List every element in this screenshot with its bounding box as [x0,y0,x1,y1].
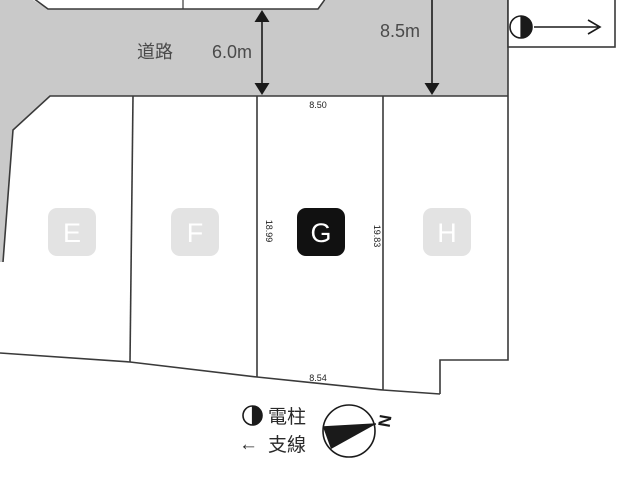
legend-pole-label: 電柱 [268,406,306,428]
plot-f-chip: F [171,208,219,256]
road-width-secondary-label: 8.5m [380,21,420,41]
plot-e-f-divider-line [130,96,133,362]
road-width-main-label: 6.0m [212,42,252,62]
north-neighbor-plot [33,0,326,9]
legend-guy-arrow-icon: ← [239,434,258,455]
road-label: 道路 [137,42,173,62]
plot-g-chip: G [297,208,345,256]
legend-pole-icon [243,406,262,425]
utility-pole-symbol [510,16,532,38]
dimension-g-top: 8.50 [309,100,327,110]
plot-e-label: E [63,218,81,248]
north-compass: N [323,405,395,457]
site-plan: 道路 6.0m 8.5m 8.50 18.99 19.83 8.54 E F G… [0,0,640,480]
plots-south-boundary-line [0,353,440,394]
site-plan-svg: 道路 6.0m 8.5m 8.50 18.99 19.83 8.54 E F G… [0,0,640,480]
dimension-g-left: 18.99 [264,220,274,243]
plot-h-label: H [437,218,457,248]
dimension-g-right: 19.83 [372,225,382,248]
plot-f-label: F [187,218,204,248]
plot-e-chip: E [48,208,96,256]
dimension-g-bottom: 8.54 [309,373,327,383]
plot-h-chip: H [423,208,471,256]
compass-north-label: N [374,413,395,428]
plot-g-label: G [310,218,331,248]
legend-guy-label: 支線 [268,434,306,456]
